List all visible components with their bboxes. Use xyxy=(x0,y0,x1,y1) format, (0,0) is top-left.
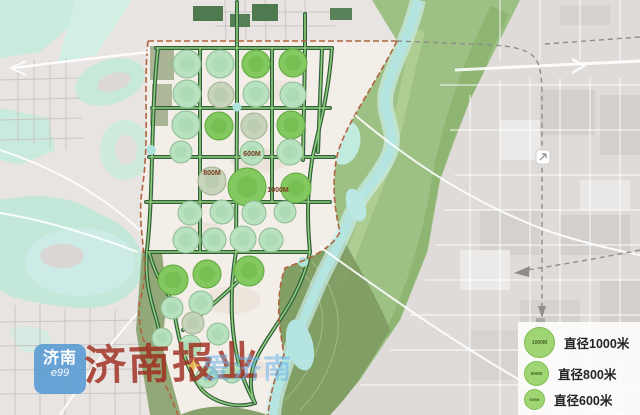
plan-circle-core xyxy=(286,88,300,102)
legend-circle-800m: 800M xyxy=(524,361,549,386)
legend-row-600m: 600M 直径600米 xyxy=(524,389,634,410)
plan-circle-core xyxy=(179,233,193,247)
plan-circle-core xyxy=(283,145,297,159)
plan-circle-core xyxy=(178,117,193,132)
plan-circle-core xyxy=(214,88,228,102)
plan-circle-core xyxy=(248,56,263,71)
diameter-label: 600M xyxy=(243,151,261,158)
interchange-arrow-icon xyxy=(536,150,550,164)
plan-circle-core xyxy=(236,232,250,246)
jinan-app-logo: 济南 e99 xyxy=(34,344,86,394)
legend-label-1000m: 直径1000米 xyxy=(564,333,629,352)
plan-circle-core xyxy=(179,56,194,71)
legend-panel: 1000M 直径1000米 800M 直径800米 600M 直径600米 xyxy=(518,322,640,415)
plan-circle-core xyxy=(207,233,220,246)
plan-circle-core xyxy=(283,117,298,132)
plan-circle-core xyxy=(175,146,187,158)
plan-circle-core xyxy=(215,205,228,218)
plan-circle-core xyxy=(247,119,261,133)
plan-circle-core xyxy=(165,272,182,289)
legend-label-800m: 直径800米 xyxy=(558,364,616,383)
plan-circle-core xyxy=(166,302,178,314)
plan-circle-core xyxy=(285,55,300,70)
legend-row-1000m: 1000M 直径1000米 xyxy=(524,327,634,358)
diameter-label: 800M xyxy=(203,170,221,177)
legend-label-600m: 直径600米 xyxy=(554,390,612,409)
plan-circle-core xyxy=(279,206,291,218)
sparkle-icon: ✦ xyxy=(186,356,203,376)
diameter-label: 1000M xyxy=(267,187,289,194)
plan-circle-core xyxy=(212,56,227,71)
plan-circle-core xyxy=(241,263,258,280)
plan-circle-core xyxy=(183,206,196,219)
legend-circle-1000m: 1000M xyxy=(524,327,555,358)
plan-circle-core xyxy=(199,266,214,281)
plan-circle-core xyxy=(211,118,226,133)
legend-row-800m: 800M 直径800米 xyxy=(524,361,634,386)
plan-circle-core xyxy=(247,206,260,219)
planning-map-screenshot: 600M800M1000M 济南 e99 济南报业 ✦爱济南 1000M 直径1… xyxy=(0,0,640,415)
city-watermark-text: 爱济南 xyxy=(203,353,293,384)
plan-circle-core xyxy=(237,177,258,198)
legend-circle-600m: 600M xyxy=(524,389,545,410)
logo-text: 济南 xyxy=(34,351,86,368)
city-watermark: ✦爱济南 xyxy=(186,347,293,387)
plan-circle-core xyxy=(179,86,194,101)
logo-subtext: e99 xyxy=(34,368,86,380)
plan-circle-core xyxy=(187,317,199,329)
plan-circle-core xyxy=(194,296,207,309)
plan-circle-core xyxy=(264,233,277,246)
plan-circle-core xyxy=(288,180,305,197)
plan-circle-core xyxy=(249,87,263,101)
